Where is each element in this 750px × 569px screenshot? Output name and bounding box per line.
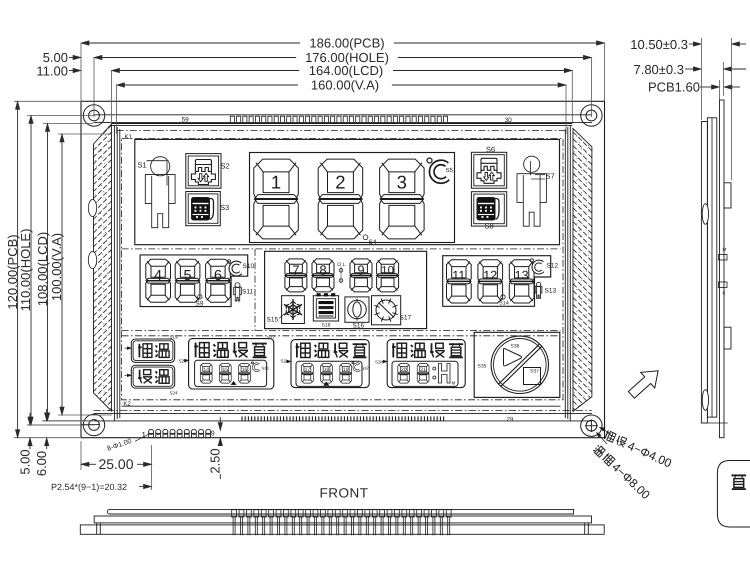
- svg-text:160.00(V.A): 160.00(V.A): [311, 78, 379, 93]
- svg-text:20: 20: [401, 367, 407, 373]
- svg-text:2.50: 2.50: [208, 448, 223, 473]
- svg-text:6.00: 6.00: [34, 451, 49, 476]
- svg-text:P2.54*(9−1)=20.32: P2.54*(9−1)=20.32: [51, 482, 127, 492]
- svg-text:59: 59: [182, 116, 190, 123]
- svg-text:S26: S26: [179, 359, 188, 364]
- svg-text:M: M: [452, 381, 456, 386]
- svg-text:PCB1.60: PCB1.60: [648, 80, 700, 95]
- svg-text:FRONT: FRONT: [320, 486, 369, 501]
- svg-text:5: 5: [183, 268, 191, 284]
- svg-text:S18: S18: [322, 323, 331, 329]
- svg-text:3: 3: [397, 171, 407, 192]
- svg-text:S27: S27: [267, 335, 276, 340]
- svg-text:18: 18: [324, 367, 330, 373]
- svg-text:S2: S2: [221, 162, 230, 171]
- svg-text:S17: S17: [400, 315, 412, 322]
- svg-text:16: 16: [242, 367, 248, 373]
- svg-text:108.00(LCD): 108.00(LCD): [35, 232, 50, 306]
- svg-text:S2b: S2b: [281, 359, 290, 364]
- svg-text:S37: S37: [530, 369, 539, 375]
- svg-text:K1: K1: [125, 133, 133, 140]
- svg-text:S11: S11: [242, 289, 253, 296]
- svg-text:14: 14: [203, 367, 209, 373]
- svg-text:5.00: 5.00: [18, 449, 33, 474]
- svg-text:19: 19: [343, 367, 349, 373]
- svg-text:100.00(V.A): 100.00(V.A): [49, 233, 64, 301]
- svg-text:S28: S28: [262, 366, 270, 371]
- svg-text:186.00(PCB): 186.00(PCB): [309, 36, 384, 51]
- svg-text:S3b: S3b: [375, 360, 384, 365]
- svg-text:15: 15: [223, 367, 229, 373]
- svg-text:S10: S10: [243, 263, 255, 270]
- svg-text:21: 21: [420, 367, 426, 373]
- svg-text:30: 30: [505, 117, 513, 124]
- svg-text:4: 4: [154, 268, 162, 284]
- svg-text:S24: S24: [170, 390, 179, 395]
- svg-text:S35: S35: [478, 364, 487, 370]
- svg-text:M: M: [723, 247, 727, 252]
- svg-text:1: 1: [271, 171, 281, 192]
- svg-text:11.00: 11.00: [36, 64, 68, 79]
- svg-text:10.50±0.3: 10.50±0.3: [630, 37, 688, 52]
- svg-text:S15: S15: [267, 317, 279, 324]
- svg-text:7: 7: [292, 262, 299, 277]
- svg-text:S7: S7: [546, 172, 555, 181]
- svg-text:7.80±0.3: 7.80±0.3: [633, 62, 684, 77]
- svg-text:S8: S8: [485, 222, 494, 231]
- svg-text:29: 29: [507, 416, 514, 423]
- svg-text:9: 9: [357, 262, 364, 277]
- svg-text:12: 12: [483, 269, 497, 283]
- svg-text:9: 9: [211, 431, 215, 438]
- svg-text:S1: S1: [138, 161, 147, 170]
- svg-text:K: K: [723, 291, 726, 296]
- svg-text:S9: S9: [196, 301, 204, 308]
- svg-text:13: 13: [515, 269, 529, 283]
- svg-text:S5: S5: [446, 167, 454, 174]
- svg-text:O L: O L: [337, 262, 345, 268]
- svg-text:S6: S6: [486, 145, 495, 154]
- svg-text:S32: S32: [362, 366, 370, 371]
- svg-text:2: 2: [335, 171, 345, 192]
- svg-text:S4: S4: [369, 239, 377, 246]
- svg-text:S16: S16: [353, 323, 365, 330]
- svg-text:110.00(HOLE): 110.00(HOLE): [18, 229, 33, 312]
- svg-text:1: 1: [142, 431, 147, 440]
- svg-text:10: 10: [381, 265, 394, 277]
- svg-text:164.00(LCD): 164.00(LCD): [309, 63, 383, 78]
- svg-text:S13: S13: [545, 288, 557, 295]
- svg-text:17: 17: [305, 367, 311, 373]
- svg-text:S3: S3: [220, 203, 229, 212]
- svg-text:25.00: 25.00: [98, 456, 133, 472]
- svg-text:S36: S36: [511, 344, 520, 350]
- svg-text:6: 6: [214, 268, 222, 284]
- svg-text:S12: S12: [547, 263, 559, 270]
- svg-text:S14: S14: [499, 301, 509, 307]
- svg-text:11: 11: [452, 269, 465, 283]
- svg-text:S19: S19: [170, 334, 179, 339]
- svg-text:8: 8: [319, 262, 326, 277]
